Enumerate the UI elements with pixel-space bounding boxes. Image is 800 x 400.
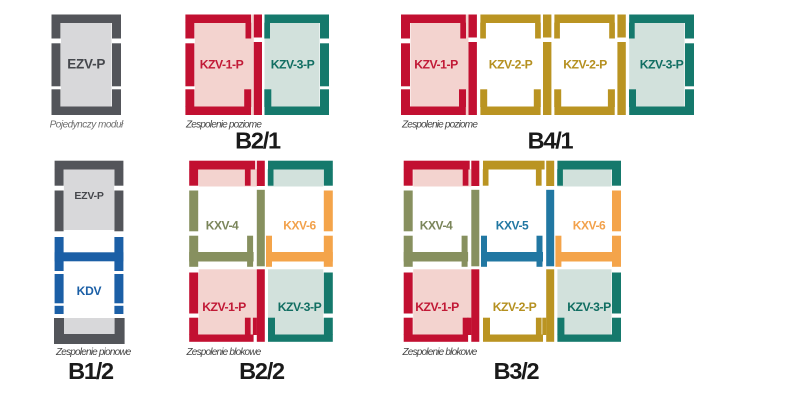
svg-text:KXV-5: KXV-5 <box>496 219 529 233</box>
svg-text:KZV-3-P: KZV-3-P <box>271 58 315 72</box>
svg-text:Zespolenie blokowe: Zespolenie blokowe <box>186 347 262 358</box>
svg-text:Pojedynczy moduł: Pojedynczy moduł <box>50 119 124 130</box>
svg-text:KXV-4: KXV-4 <box>206 219 239 233</box>
svg-text:Zespolenie pionowe: Zespolenie pionowe <box>55 347 132 358</box>
svg-text:KZV-2-P: KZV-2-P <box>563 58 607 72</box>
svg-text:EZV-P: EZV-P <box>67 56 105 71</box>
svg-text:KZV-1-P: KZV-1-P <box>414 58 458 72</box>
svg-text:KXV-6: KXV-6 <box>573 219 606 233</box>
svg-text:B2/2: B2/2 <box>239 358 285 384</box>
svg-text:B2/1: B2/1 <box>235 128 281 154</box>
svg-text:Zespolenie blokowe: Zespolenie blokowe <box>402 347 478 358</box>
svg-text:KZV-3-P: KZV-3-P <box>567 300 611 314</box>
svg-text:KXV-4: KXV-4 <box>420 219 453 233</box>
svg-text:Zespolenie poziome: Zespolenie poziome <box>401 119 478 130</box>
svg-text:KZV-2-P: KZV-2-P <box>489 58 533 72</box>
svg-text:KZV-1-P: KZV-1-P <box>202 300 246 314</box>
svg-text:KXV-6: KXV-6 <box>283 219 316 233</box>
svg-text:KZV-1-P: KZV-1-P <box>415 300 459 314</box>
svg-text:B4/1: B4/1 <box>528 128 574 154</box>
svg-text:KZV-1-P: KZV-1-P <box>200 58 244 72</box>
svg-text:B1/2: B1/2 <box>68 358 114 384</box>
svg-text:B3/2: B3/2 <box>494 358 540 384</box>
svg-text:EZV-P: EZV-P <box>74 190 104 202</box>
svg-text:KZV-3-P: KZV-3-P <box>640 58 684 72</box>
svg-text:KDV: KDV <box>77 284 102 298</box>
svg-text:KZV-3-P: KZV-3-P <box>278 300 322 314</box>
svg-text:KZV-2-P: KZV-2-P <box>493 300 537 314</box>
